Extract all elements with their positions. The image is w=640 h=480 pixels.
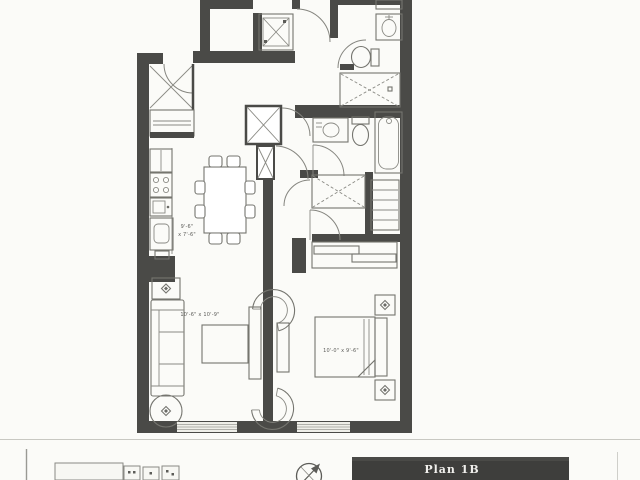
linen-closet — [371, 180, 399, 230]
window — [177, 422, 237, 432]
coffee-table — [202, 325, 248, 363]
bedroom-closet — [312, 242, 397, 268]
stove-cooktop — [150, 173, 172, 197]
oven-dishwasher — [150, 218, 173, 250]
nightstand — [375, 295, 395, 315]
living-room: 10'-6" x 10'-9" — [150, 278, 303, 438]
bedroom-dimension: 10'-0" x 9'-6" — [323, 348, 359, 354]
walk-in-closet — [312, 175, 365, 208]
hall-closet — [246, 106, 281, 144]
kitchen-dimension-line1: 9'-6" — [181, 224, 194, 230]
entry-foyer — [150, 64, 194, 138]
bath-vanity-sink — [313, 118, 348, 142]
laundry-closet — [259, 14, 293, 50]
ensuite-vanity-sink — [376, 14, 402, 40]
ensuite-bathroom — [338, 0, 402, 107]
main-bathroom — [313, 112, 402, 176]
dining-chair — [245, 181, 255, 194]
fridge — [150, 149, 172, 172]
bed — [315, 317, 387, 377]
kitchen-dimension-line2: x 7'-6" — [178, 232, 196, 238]
plan-title: Plan 1B — [424, 463, 479, 476]
coat-closet — [257, 146, 274, 179]
dining-chair — [195, 205, 205, 218]
bathtub — [375, 112, 402, 173]
nightstand — [375, 380, 395, 400]
ensuite-shower — [340, 73, 400, 107]
dining-chair — [209, 233, 222, 244]
tv-console — [249, 307, 261, 379]
plan-title-bar: Plan 1B — [352, 457, 569, 480]
dining-chair — [227, 156, 240, 167]
dining-table — [204, 167, 246, 233]
building-key-plan — [55, 463, 179, 480]
headboard — [375, 318, 387, 376]
kitchen: 9'-6" x 7'-6" — [150, 148, 196, 259]
hall-door-arc — [297, 9, 330, 42]
bed-fold — [358, 360, 375, 377]
bath-toilet — [352, 117, 369, 146]
dining-chair — [245, 205, 255, 218]
entry-closet-rod — [150, 110, 194, 138]
dining-area — [195, 156, 255, 244]
sofa — [151, 300, 184, 396]
scanned-floor-plan-page: 9'-6" x 7'-6" — [0, 0, 640, 480]
window — [297, 422, 350, 432]
entry-door-arc — [164, 64, 193, 93]
dining-chair — [227, 233, 240, 244]
kitchen-sink — [150, 198, 172, 216]
floor-plan-image: 9'-6" x 7'-6" — [0, 0, 640, 480]
dining-chair — [209, 156, 222, 167]
wic-door-arc — [284, 180, 310, 206]
page-footer: Plan 1B — [0, 440, 640, 480]
living-dimension: 10'-6" x 10'-9" — [180, 312, 219, 318]
dining-chair — [195, 181, 205, 194]
ensuite-toilet — [352, 47, 380, 68]
north-arrow-icon — [297, 464, 322, 480]
